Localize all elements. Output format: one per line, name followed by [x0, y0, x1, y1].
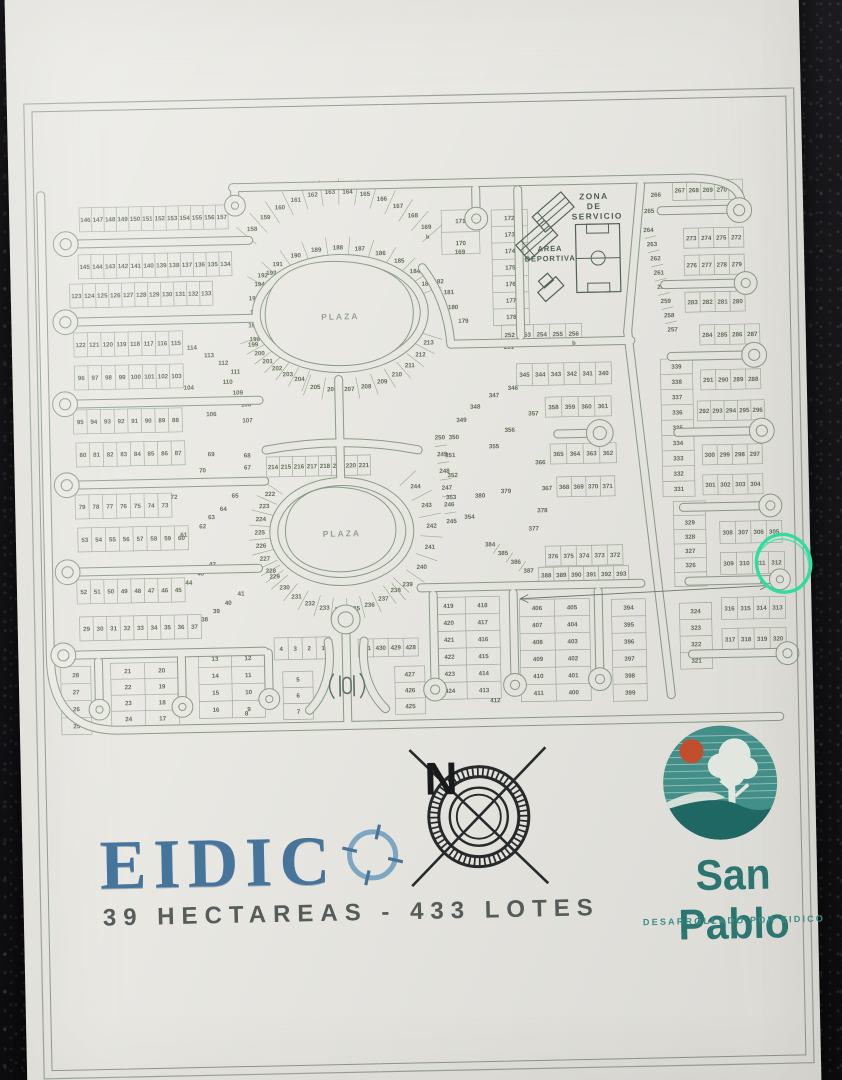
svg-text:143: 143: [105, 263, 116, 270]
svg-text:389: 389: [556, 572, 567, 579]
svg-text:341: 341: [582, 370, 593, 377]
svg-text:333: 333: [673, 455, 684, 462]
svg-text:97: 97: [91, 375, 99, 382]
svg-text:380: 380: [475, 492, 486, 499]
svg-text:93: 93: [104, 418, 112, 425]
lot-block: 8081828384858687: [76, 441, 185, 467]
svg-text:406: 406: [532, 605, 543, 612]
svg-text:340: 340: [598, 370, 609, 377]
svg-text:303: 303: [735, 481, 746, 488]
svg-text:29: 29: [83, 626, 91, 633]
svg-text:288: 288: [748, 376, 759, 383]
svg-text:74: 74: [148, 503, 156, 510]
svg-text:319: 319: [757, 636, 768, 643]
lot-block: 283282281280: [685, 291, 745, 312]
svg-text:77: 77: [106, 503, 114, 510]
svg-text:277: 277: [702, 262, 713, 269]
svg-text:88: 88: [172, 417, 180, 424]
svg-text:296: 296: [752, 407, 763, 414]
svg-text:374: 374: [579, 553, 590, 560]
svg-text:84: 84: [134, 451, 142, 458]
svg-text:153: 153: [167, 215, 178, 222]
eidico-logo: EIDIC: [99, 820, 406, 906]
svg-text:336: 336: [672, 409, 683, 416]
svg-text:181: 181: [444, 289, 455, 296]
svg-text:299: 299: [720, 452, 731, 459]
svg-text:28: 28: [72, 672, 80, 679]
svg-text:315: 315: [740, 605, 751, 612]
svg-text:44: 44: [185, 580, 193, 587]
svg-text:237: 237: [378, 596, 389, 603]
svg-text:415: 415: [478, 653, 489, 660]
svg-text:378: 378: [537, 507, 548, 514]
svg-text:85: 85: [147, 451, 155, 458]
svg-text:412: 412: [490, 697, 501, 704]
svg-text:360: 360: [581, 403, 592, 410]
svg-text:223: 223: [259, 503, 270, 510]
lot-block: 394395396397398399: [611, 599, 647, 702]
svg-text:317: 317: [725, 636, 736, 643]
svg-text:205: 205: [310, 384, 321, 391]
svg-text:425: 425: [405, 703, 416, 710]
svg-text:324: 324: [690, 608, 701, 615]
svg-text:391: 391: [586, 571, 597, 578]
svg-text:242: 242: [426, 523, 437, 530]
svg-text:409: 409: [533, 656, 544, 663]
svg-text:79: 79: [79, 504, 87, 511]
lot-block: 346347348349350351352353354355356357: [444, 384, 542, 521]
svg-text:261: 261: [654, 270, 665, 277]
svg-text:372: 372: [610, 552, 621, 559]
svg-text:281: 281: [717, 299, 728, 306]
svg-text:337: 337: [672, 394, 683, 401]
svg-text:111: 111: [231, 369, 241, 376]
svg-text:356: 356: [504, 427, 515, 434]
svg-text:426: 426: [405, 687, 416, 694]
svg-text:DEPORTIVA: DEPORTIVA: [525, 254, 576, 264]
lot-block: 122121120119118117116115: [74, 331, 183, 357]
svg-text:313: 313: [772, 604, 783, 611]
svg-text:397: 397: [624, 656, 635, 663]
svg-text:233: 233: [319, 605, 330, 612]
svg-text:353: 353: [446, 494, 457, 501]
svg-text:150: 150: [130, 216, 141, 223]
svg-text:62: 62: [199, 523, 207, 530]
crosshair-o-icon: [340, 822, 405, 892]
svg-text:250: 250: [435, 434, 446, 441]
svg-text:201: 201: [262, 358, 273, 365]
lot-block: 292293294295296: [697, 400, 764, 421]
svg-text:83: 83: [120, 451, 128, 458]
lot-block: 358359360361: [545, 396, 611, 417]
svg-text:243: 243: [421, 502, 432, 509]
svg-text:67: 67: [244, 464, 252, 471]
svg-text:94: 94: [90, 419, 98, 426]
svg-text:174: 174: [505, 248, 516, 255]
svg-text:275: 275: [716, 235, 727, 242]
svg-text:91: 91: [131, 418, 139, 425]
lot-block: 245246247248249250: [435, 434, 458, 525]
svg-text:244: 244: [410, 483, 421, 490]
lot-block: 9594939291908988: [73, 408, 182, 434]
svg-text:398: 398: [625, 673, 636, 680]
svg-text:81: 81: [93, 452, 101, 459]
svg-text:361: 361: [598, 403, 609, 410]
svg-text:107: 107: [242, 417, 253, 424]
svg-text:404: 404: [567, 621, 578, 628]
svg-text:214: 214: [268, 464, 279, 471]
svg-text:213: 213: [423, 339, 434, 346]
svg-text:245: 245: [446, 518, 457, 525]
svg-text:134: 134: [220, 261, 231, 268]
svg-text:189: 189: [311, 247, 322, 254]
svg-text:162: 162: [307, 192, 318, 199]
svg-text:284: 284: [702, 332, 713, 339]
svg-text:131: 131: [175, 291, 186, 298]
svg-text:31: 31: [110, 625, 118, 632]
svg-text:246: 246: [444, 501, 455, 508]
svg-text:215: 215: [281, 464, 292, 471]
svg-text:82: 82: [107, 451, 115, 458]
svg-text:304: 304: [750, 481, 761, 488]
svg-text:15: 15: [212, 690, 220, 697]
svg-text:332: 332: [673, 471, 684, 478]
svg-text:160: 160: [275, 204, 286, 211]
svg-text:155: 155: [192, 215, 203, 222]
svg-text:222: 222: [265, 491, 276, 498]
svg-text:154: 154: [179, 215, 190, 222]
lot-block: 330329328327326325: [673, 501, 707, 587]
svg-text:202: 202: [272, 365, 283, 372]
svg-text:400: 400: [569, 689, 580, 696]
svg-text:331: 331: [674, 486, 685, 493]
svg-text:422: 422: [444, 654, 455, 661]
svg-text:328: 328: [685, 534, 696, 541]
lot-block: 300299298297: [702, 444, 762, 465]
lot-block: 146147148149150151152153154155156157: [79, 205, 228, 232]
svg-text:216: 216: [294, 463, 305, 470]
svg-text:34: 34: [151, 625, 159, 632]
svg-text:411: 411: [534, 690, 545, 697]
svg-text:186: 186: [375, 250, 386, 257]
svg-text:49: 49: [121, 588, 129, 595]
svg-text:130: 130: [162, 291, 173, 298]
sports-field-icon: [575, 224, 620, 293]
svg-text:140: 140: [143, 263, 154, 270]
svg-text:257: 257: [667, 326, 678, 333]
svg-text:266: 266: [651, 192, 662, 199]
svg-text:268: 268: [689, 187, 700, 194]
lot-block: 366367378377379380: [474, 459, 553, 534]
lot-block: 123124125126127128129130131132133: [70, 281, 213, 308]
site-plan-paper: 1461471481491501511521531541551561571451…: [4, 0, 821, 1080]
annotation-layer: [747, 528, 819, 602]
svg-text:56: 56: [123, 536, 131, 543]
svg-text:416: 416: [478, 636, 489, 643]
svg-text:241: 241: [425, 544, 436, 551]
svg-text:427: 427: [405, 671, 416, 678]
svg-text:22: 22: [125, 684, 133, 691]
svg-text:395: 395: [624, 622, 635, 629]
svg-text:204: 204: [294, 376, 305, 383]
svg-text:349: 349: [456, 417, 467, 424]
svg-text:401: 401: [568, 672, 579, 679]
svg-text:359: 359: [565, 404, 576, 411]
project-name: San Pablo: [640, 849, 828, 951]
lot-block: 291290289288: [701, 369, 761, 390]
svg-text:120: 120: [103, 341, 114, 348]
svg-text:5: 5: [296, 677, 300, 684]
svg-text:225: 225: [255, 529, 266, 536]
svg-text:75: 75: [134, 503, 142, 510]
svg-text:58: 58: [150, 536, 158, 543]
svg-text:146: 146: [80, 217, 91, 224]
svg-text:157: 157: [217, 214, 228, 221]
lot-block: 384385386387: [485, 540, 535, 575]
lot-block: 293031323334353637: [80, 614, 202, 641]
svg-text:169: 169: [455, 249, 466, 256]
svg-text:145: 145: [79, 264, 90, 271]
svg-text:119: 119: [116, 341, 127, 348]
lot-block: 368369370371: [557, 476, 615, 497]
svg-text:358: 358: [548, 404, 559, 411]
svg-text:357: 357: [528, 410, 539, 417]
svg-text:133: 133: [201, 290, 212, 297]
svg-text:418: 418: [477, 602, 488, 609]
svg-text:287: 287: [747, 331, 758, 338]
svg-text:112: 112: [218, 360, 229, 367]
svg-text:33: 33: [137, 625, 145, 632]
svg-text:403: 403: [567, 638, 578, 645]
svg-text:369: 369: [573, 484, 584, 491]
svg-text:32: 32: [124, 625, 132, 632]
svg-text:350: 350: [449, 434, 460, 441]
svg-text:4: 4: [279, 646, 283, 653]
svg-text:139: 139: [156, 262, 167, 269]
svg-text:24: 24: [125, 716, 133, 723]
svg-text:73: 73: [161, 502, 169, 509]
svg-text:16: 16: [213, 707, 221, 714]
svg-text:161: 161: [291, 197, 302, 204]
svg-text:309: 309: [723, 560, 734, 567]
svg-text:102: 102: [158, 373, 169, 380]
svg-text:402: 402: [568, 655, 579, 662]
svg-text:276: 276: [687, 262, 698, 269]
svg-text:116: 116: [157, 340, 168, 347]
svg-text:55: 55: [109, 536, 117, 543]
svg-text:90: 90: [145, 418, 153, 425]
svg-text:169: 169: [421, 224, 432, 231]
svg-text:127: 127: [123, 292, 134, 299]
svg-text:57: 57: [137, 536, 145, 543]
svg-text:366: 366: [535, 459, 546, 466]
svg-text:177: 177: [506, 297, 517, 304]
svg-text:292: 292: [699, 408, 710, 415]
svg-text:70: 70: [199, 467, 207, 474]
svg-text:64: 64: [220, 506, 228, 513]
svg-text:218: 218: [320, 463, 331, 470]
svg-text:18: 18: [159, 699, 167, 706]
svg-text:113: 113: [204, 352, 215, 359]
svg-text:307: 307: [738, 529, 749, 536]
svg-text:209: 209: [377, 378, 388, 385]
svg-text:298: 298: [735, 451, 746, 458]
svg-text:220: 220: [346, 462, 357, 469]
svg-text:125: 125: [97, 293, 108, 300]
svg-text:40: 40: [225, 600, 233, 607]
svg-text:347: 347: [489, 392, 500, 399]
area-deportiva-label: AREA: [537, 244, 562, 254]
svg-text:13: 13: [211, 656, 219, 663]
svg-text:348: 348: [470, 404, 481, 411]
svg-text:420: 420: [444, 620, 455, 627]
svg-text:138: 138: [169, 262, 180, 269]
lot-block: 4321: [274, 637, 330, 660]
svg-text:2: 2: [307, 645, 311, 652]
svg-text:212: 212: [415, 351, 426, 358]
svg-text:239: 239: [402, 581, 413, 588]
svg-text:60: 60: [178, 535, 186, 542]
svg-text:99: 99: [119, 374, 127, 381]
clubhouse-icon: [533, 271, 564, 302]
lot-block: 316315314313: [721, 596, 785, 619]
svg-text:323: 323: [691, 625, 702, 632]
svg-text:363: 363: [586, 450, 597, 457]
svg-text:263: 263: [647, 241, 658, 248]
lot-block: 284285286287: [700, 324, 760, 345]
svg-text:115: 115: [171, 340, 182, 347]
svg-text:229: 229: [270, 573, 281, 580]
svg-text:DE: DE: [587, 201, 602, 211]
svg-text:86: 86: [161, 450, 169, 457]
svg-text:428: 428: [406, 644, 417, 651]
svg-text:178: 178: [506, 314, 517, 321]
svg-text:30: 30: [97, 626, 105, 633]
lot-block: 145144143142141140139138137136135134: [78, 252, 232, 279]
svg-text:413: 413: [479, 687, 490, 694]
svg-text:262: 262: [650, 255, 661, 262]
svg-text:278: 278: [717, 262, 728, 269]
lot-block: 339338337336335334333332331: [660, 358, 695, 496]
photo-scene: 1461471481491501511521531541551561571451…: [0, 0, 842, 1080]
svg-text:38: 38: [201, 616, 209, 623]
svg-text:280: 280: [732, 298, 743, 305]
svg-text:342: 342: [567, 371, 578, 378]
svg-text:23: 23: [125, 700, 133, 707]
svg-text:365: 365: [553, 451, 564, 458]
svg-text:37: 37: [191, 624, 199, 631]
svg-text:274: 274: [701, 235, 712, 242]
svg-text:158: 158: [247, 226, 258, 233]
lot-block: 406405407404408403409402410401411400: [519, 598, 591, 701]
svg-text:232: 232: [305, 600, 316, 607]
svg-text:344: 344: [535, 371, 546, 378]
svg-text:371: 371: [602, 483, 613, 490]
svg-text:199: 199: [248, 341, 259, 348]
svg-text:326: 326: [685, 562, 696, 569]
svg-text:279: 279: [732, 261, 743, 268]
svg-text:124: 124: [84, 293, 95, 300]
svg-text:289: 289: [733, 376, 744, 383]
svg-text:100: 100: [130, 374, 141, 381]
svg-text:78: 78: [92, 504, 100, 511]
svg-text:151: 151: [142, 216, 153, 223]
svg-text:147: 147: [93, 217, 104, 224]
svg-text:126: 126: [110, 292, 121, 299]
svg-text:69: 69: [208, 451, 216, 458]
svg-text:185: 185: [394, 258, 405, 265]
svg-text:109: 109: [233, 390, 244, 397]
svg-text:264: 264: [643, 227, 654, 234]
svg-text:258: 258: [664, 312, 675, 319]
svg-text:76: 76: [120, 503, 128, 510]
svg-text:122: 122: [75, 342, 86, 349]
svg-text:203: 203: [283, 371, 294, 378]
svg-text:375: 375: [563, 553, 574, 560]
svg-text:103: 103: [171, 373, 182, 380]
svg-text:117: 117: [144, 341, 155, 348]
svg-text:230: 230: [279, 584, 290, 591]
svg-text:351: 351: [445, 452, 456, 459]
svg-text:314: 314: [756, 605, 767, 612]
svg-text:370: 370: [588, 483, 599, 490]
svg-text:110: 110: [223, 379, 234, 386]
eidico-wordmark-letters: EIDIC: [99, 822, 338, 907]
svg-text:211: 211: [405, 362, 416, 369]
svg-text:89: 89: [158, 417, 166, 424]
svg-text:286: 286: [732, 331, 743, 338]
svg-text:252: 252: [505, 332, 516, 339]
svg-text:173: 173: [504, 231, 515, 238]
svg-text:68: 68: [244, 452, 252, 459]
svg-text:12: 12: [244, 655, 252, 662]
svg-text:226: 226: [256, 543, 267, 550]
svg-text:168: 168: [408, 212, 419, 219]
svg-text:7: 7: [297, 709, 301, 716]
svg-text:187: 187: [355, 246, 366, 253]
svg-text:343: 343: [551, 371, 562, 378]
lot-block: 412: [490, 697, 501, 704]
svg-text:388: 388: [541, 572, 552, 579]
svg-text:399: 399: [625, 690, 636, 697]
svg-text:302: 302: [720, 482, 731, 489]
svg-text:51: 51: [94, 589, 102, 596]
svg-text:272: 272: [731, 234, 742, 241]
svg-text:329: 329: [684, 519, 695, 526]
svg-text:46: 46: [161, 587, 169, 594]
san-pablo-emblem-icon: [658, 720, 783, 850]
svg-text:207: 207: [344, 386, 355, 393]
svg-text:231: 231: [291, 593, 302, 600]
svg-text:256: 256: [568, 331, 579, 338]
svg-text:136: 136: [195, 261, 206, 268]
svg-text:221: 221: [359, 462, 370, 469]
svg-text:394: 394: [623, 605, 634, 612]
svg-text:385: 385: [498, 550, 509, 557]
svg-text:20: 20: [158, 667, 166, 674]
lot-block: 365364363362: [550, 443, 616, 464]
svg-text:36: 36: [178, 624, 186, 631]
svg-text:290: 290: [718, 377, 729, 384]
svg-text:210: 210: [392, 371, 403, 378]
lot-block: 131214111510169: [198, 649, 265, 718]
svg-text:14: 14: [212, 673, 220, 680]
lot-block: 96979899100101102103: [74, 364, 183, 390]
svg-text:318: 318: [741, 636, 752, 643]
svg-text:386: 386: [511, 559, 522, 566]
svg-text:41: 41: [238, 591, 246, 598]
lot-block: 214215216217218219220221: [266, 455, 370, 477]
